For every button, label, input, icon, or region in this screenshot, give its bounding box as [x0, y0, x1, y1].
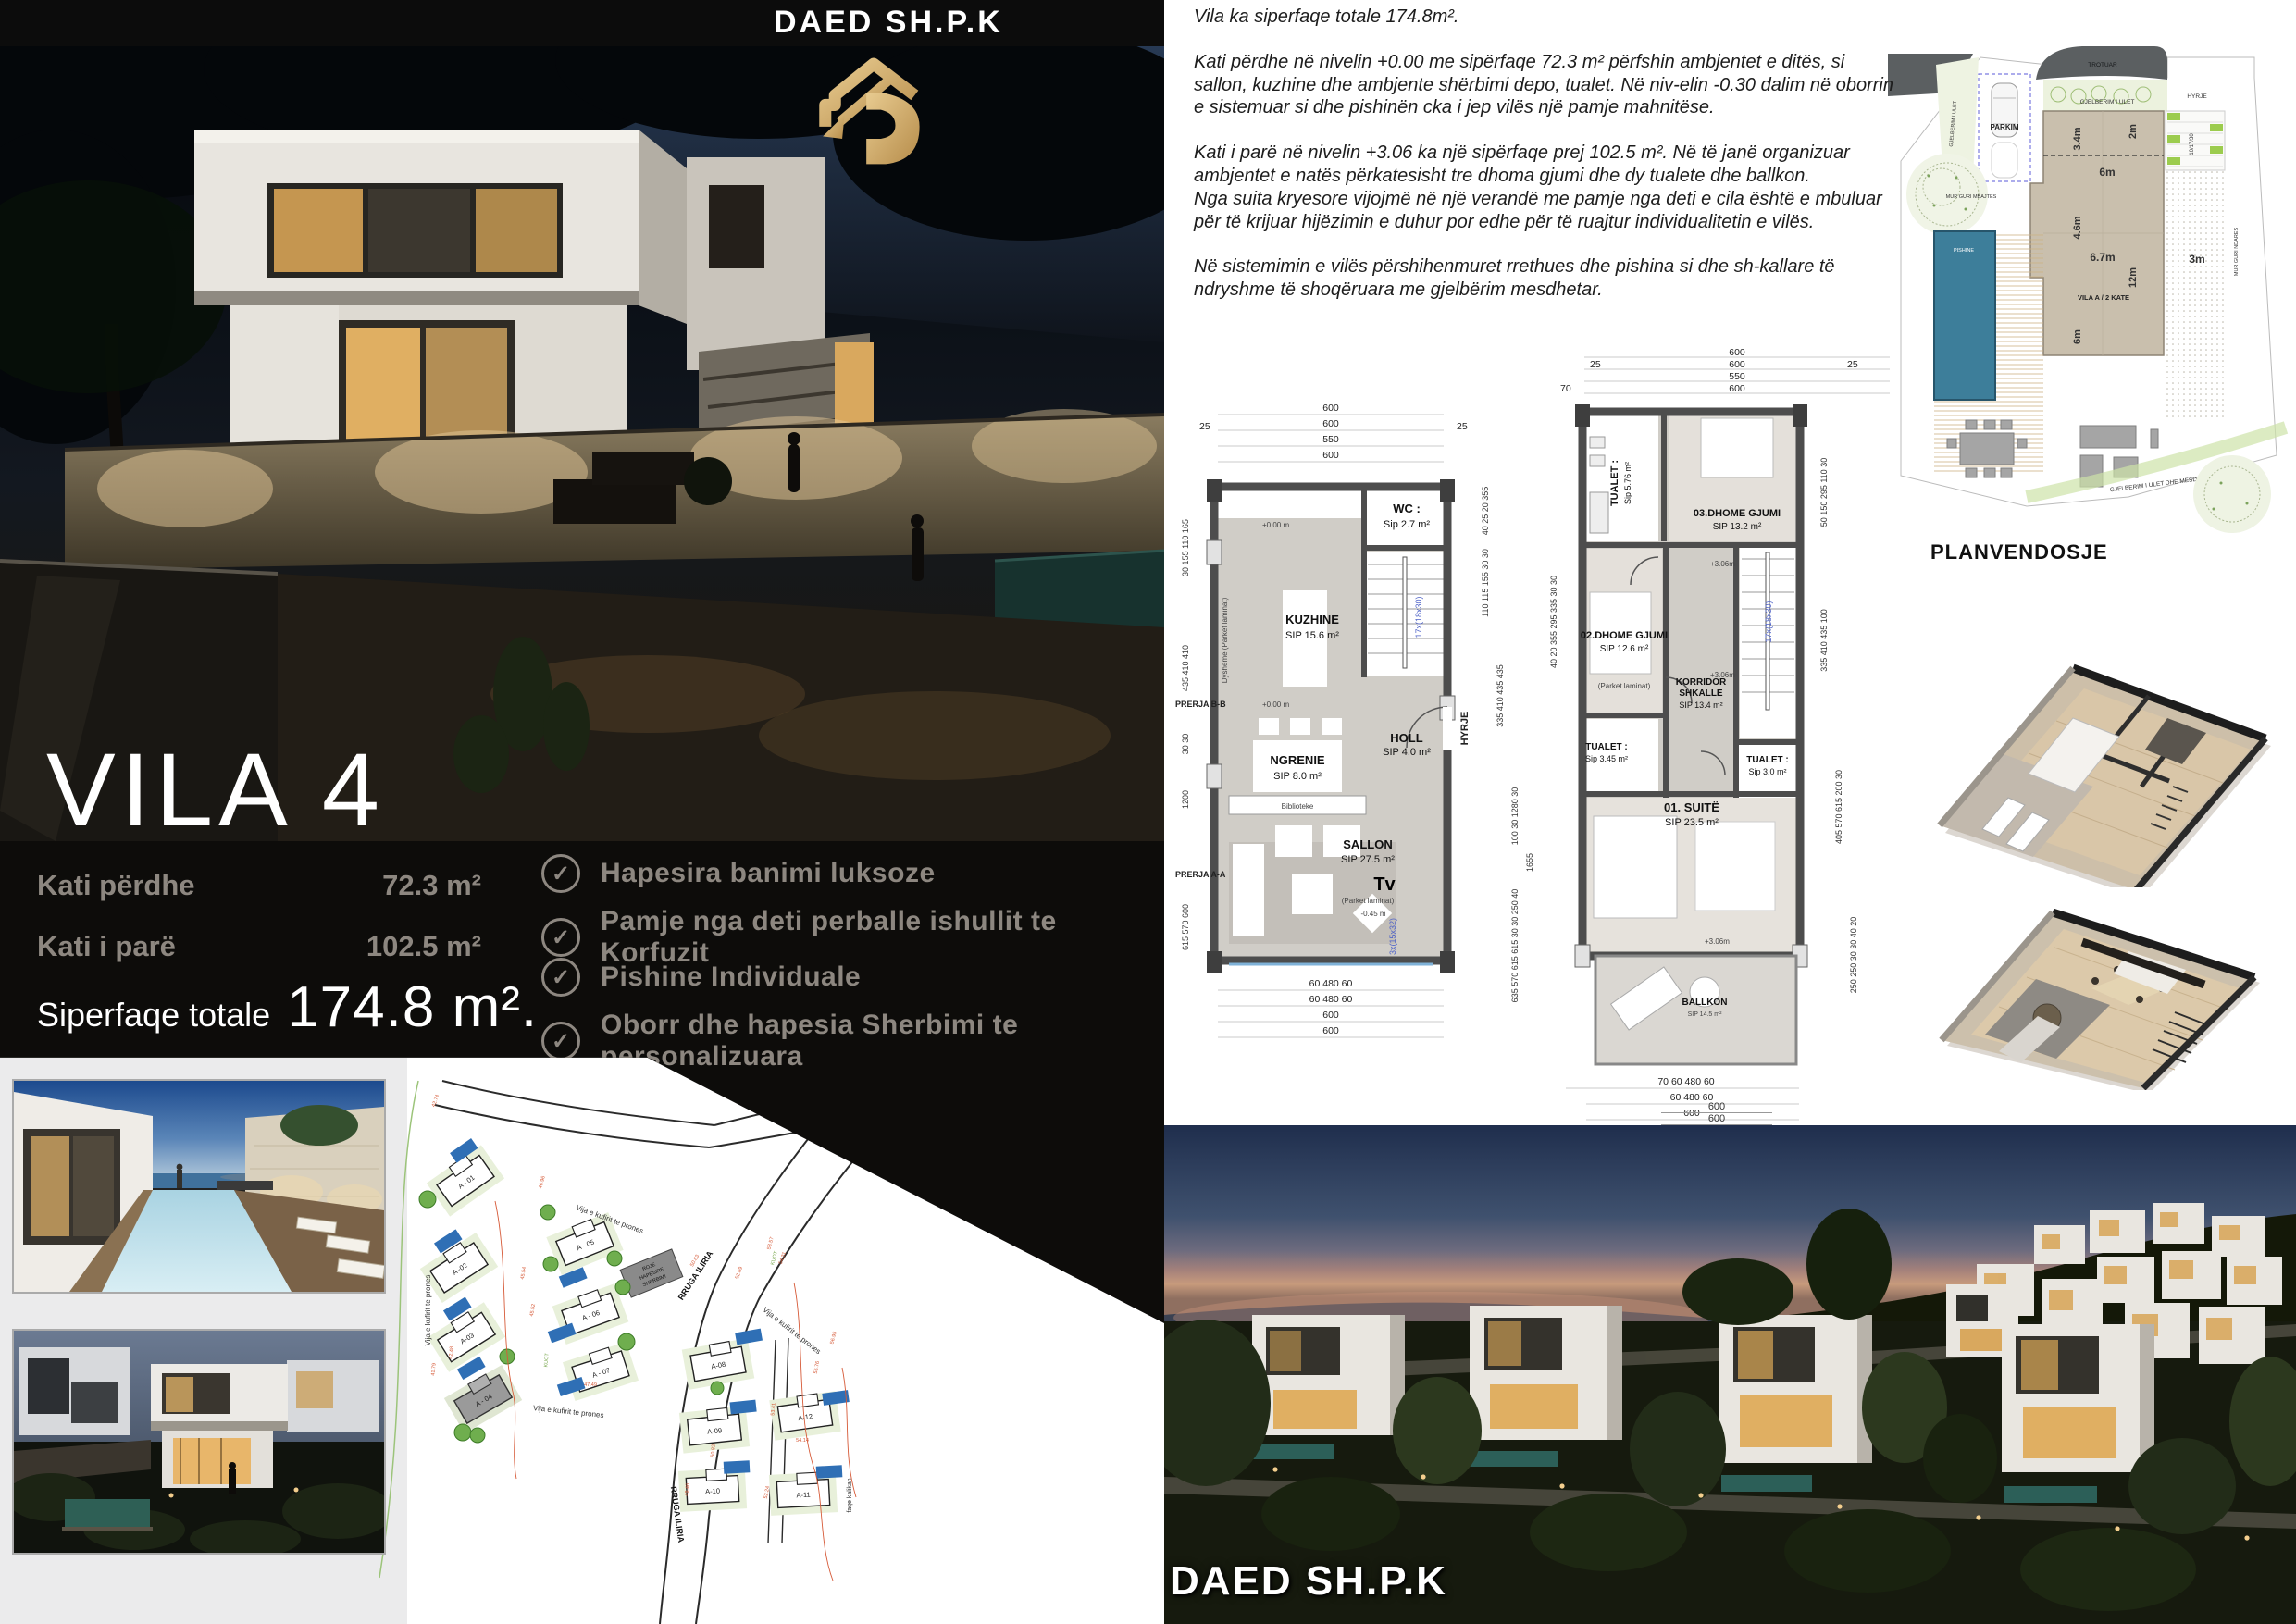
hero-villa-photo	[0, 46, 1164, 841]
siteplan-title: PLANVENDOSJE	[1930, 540, 2108, 564]
stat-value: 72.3 m²	[382, 869, 481, 902]
svg-text:60 480 60: 60 480 60	[1309, 994, 1353, 1005]
svg-text:PARKIM: PARKIM	[1991, 123, 2019, 131]
svg-text:6.7m: 6.7m	[2090, 251, 2115, 264]
villa-footprint: 3.4m 2m 6m 4.6m 6.7m 12m VILA A / 2 KATE…	[2030, 111, 2164, 355]
isometric-plan-first-floor	[1862, 614, 2296, 887]
description-block: Vila ka siperfaqe totale 174.8m². Kati p…	[1194, 6, 1897, 302]
svg-text:SIP 23.5 m²: SIP 23.5 m²	[1665, 817, 1719, 828]
svg-text:(Parket laminat): (Parket laminat)	[1342, 897, 1395, 905]
svg-text:SIP 14.5 m²: SIP 14.5 m²	[1688, 1011, 1723, 1018]
kalikan-label: faqe kalikan	[847, 1478, 853, 1512]
svg-text:+3.06m: +3.06m	[1705, 937, 1730, 946]
svg-text:A-10: A-10	[705, 1487, 720, 1496]
svg-text:Sip 3.45 m²: Sip 3.45 m²	[1585, 754, 1628, 763]
svg-text:Dysheme (Parket laminat): Dysheme (Parket laminat)	[1221, 597, 1229, 683]
svg-text:PRERJA B-B: PRERJA B-B	[1175, 700, 1226, 709]
svg-text:WC :: WC :	[1393, 502, 1421, 515]
svg-text:47.49: 47.49	[584, 1382, 597, 1388]
brand-title-bottom: DAED SH.P.K	[1170, 1558, 1447, 1605]
svg-text:50 150 295 110 30: 50 150 295 110 30	[1819, 458, 1829, 527]
plan-top-dimensions: 600 600 550 600 25 70 25	[1560, 347, 1890, 394]
svg-text:02.DHOME GJUMI: 02.DHOME GJUMI	[1581, 630, 1668, 641]
svg-text:25: 25	[1847, 359, 1858, 370]
svg-text:53.41: 53.41	[770, 1403, 776, 1416]
svg-text:HOLL: HOLL	[1390, 731, 1422, 745]
svg-text:SALLON: SALLON	[1343, 837, 1392, 851]
svg-text:Sip 3.0 m²: Sip 3.0 m²	[1748, 767, 1786, 776]
check-circle-icon: ✓	[541, 958, 580, 997]
villa-plots: A - 01 A -02 A-03 A - 04 A - 05 A - 06 A…	[420, 1145, 841, 1516]
site-plan: TROTUAR GJELBERIM I ULET GJELBERIM I ULE…	[1888, 20, 2296, 539]
total-area-line: Siperfaqe totale 174.8 m².	[37, 974, 538, 1040]
wall-label-right: MUR GURI NDARES	[2234, 228, 2240, 277]
svg-text:SHKALLE: SHKALLE	[1679, 688, 1723, 699]
svg-text:KUZHINE: KUZHINE	[1285, 613, 1339, 626]
svg-text:03.DHOME GJUMI: 03.DHOME GJUMI	[1694, 508, 1781, 519]
svg-text:Biblioteke: Biblioteke	[1282, 802, 1314, 811]
sidewalk: TROTUAR	[2036, 46, 2167, 80]
plan-left-dimensions: 40 20 355 295 335 30 30	[1549, 576, 1558, 668]
svg-text:3x(15x32): 3x(15x32)	[1388, 918, 1397, 955]
svg-text:335 410 435 100: 335 410 435 100	[1819, 609, 1829, 672]
svg-text:30 155 110 165: 30 155 110 165	[1181, 519, 1190, 576]
stat-label: Kati i parë	[37, 930, 176, 963]
svg-text:SIP 4.0 m²: SIP 4.0 m²	[1383, 747, 1431, 758]
svg-text:46.96: 46.96	[538, 1175, 546, 1189]
svg-text:335 410 435 435: 335 410 435 435	[1496, 664, 1505, 727]
svg-text:10/17/30: 10/17/30	[2190, 133, 2195, 155]
svg-text:49.46: 49.46	[684, 1483, 690, 1496]
balcony	[1595, 956, 1796, 1064]
svg-text:01. SUITË: 01. SUITË	[1664, 800, 1719, 814]
entry-steps: 10/17/30	[2166, 111, 2225, 170]
check-circle-icon: ✓	[541, 1022, 580, 1060]
description-paragraph: Në sistemimin e vilës përshihenmuret rre…	[1194, 255, 1897, 302]
brand-title: DAED SH.P.K	[774, 5, 1003, 41]
svg-text:250 250 30 30 40 20: 250 250 30 30 40 20	[1849, 917, 1858, 994]
svg-text:SIP 8.0 m²: SIP 8.0 m²	[1273, 771, 1322, 782]
description-paragraph: Kati përdhe në nivelin +0.00 me sipërfaq…	[1194, 51, 1897, 119]
entry-label: HYRJE	[2187, 93, 2207, 100]
svg-text:110 115 155 30 30: 110 115 155 30 30	[1481, 549, 1490, 617]
svg-text:1200: 1200	[1181, 790, 1190, 809]
svg-text:Tv: Tv	[1373, 874, 1396, 895]
check-circle-icon: ✓	[541, 918, 580, 957]
svg-text:Vija e kufirit te prones: Vija e kufirit te prones	[533, 1404, 604, 1419]
svg-text:+3.06m: +3.06m	[1710, 560, 1735, 568]
plan-right-dimensions: 40 25 20 355 110 115 155 30 30 335 410 4…	[1481, 487, 1534, 1003]
svg-text:PISHINE: PISHINE	[1954, 248, 1974, 254]
svg-text:600: 600	[1729, 347, 1745, 358]
brochure-page: DAED SH.P.K	[0, 0, 2296, 1624]
total-area-label: Siperfaqe totale	[37, 996, 270, 1035]
description-paragraph: për të krijuar hijëzimin e duhur por edh…	[1194, 211, 1897, 234]
svg-text:TUALET :: TUALET :	[1585, 742, 1628, 752]
svg-text:54.14: 54.14	[796, 1438, 809, 1444]
floor-plan-first: 600 600 550 600 25 70 25	[1529, 344, 1903, 1140]
villa-title: VILA 4	[46, 738, 385, 842]
stat-value: 102.5 m²	[366, 930, 481, 963]
daed-logo-icon	[813, 52, 935, 167]
svg-text:55.76: 55.76	[813, 1361, 821, 1375]
svg-text:Vija e kufirit te prones: Vija e kufirit te prones	[762, 1306, 823, 1356]
svg-text:GJELBERIM I ULET: GJELBERIM I ULET	[2080, 99, 2135, 105]
dim-3m: 3m	[2189, 253, 2204, 266]
svg-text:54.31: 54.31	[778, 1251, 788, 1265]
svg-text:+0.00 m: +0.00 m	[1262, 700, 1289, 709]
svg-text:HYRJE: HYRJE	[1459, 712, 1471, 746]
svg-text:405 570 615 200 30: 405 570 615 200 30	[1834, 770, 1843, 844]
description-paragraph: Vila ka siperfaqe totale 174.8m².	[1194, 6, 1897, 29]
villa-building	[194, 130, 687, 472]
isometric-plan-ground-floor	[1897, 877, 2296, 1090]
svg-text:53.57: 53.57	[766, 1236, 775, 1250]
svg-text:A-11: A-11	[796, 1491, 811, 1500]
svg-text:TUALET :: TUALET :	[1746, 755, 1789, 765]
svg-text:SIP 13.2 m²: SIP 13.2 m²	[1713, 522, 1762, 532]
svg-text:6m: 6m	[2072, 329, 2083, 344]
stat-label: Kati përdhe	[37, 869, 195, 902]
svg-text:550: 550	[1729, 371, 1745, 382]
svg-text:45.52: 45.52	[529, 1304, 537, 1318]
svg-text:56.95: 56.95	[829, 1331, 838, 1345]
svg-text:Vija e kufirit te prones: Vija e kufirit te prones	[424, 1275, 432, 1346]
feature-item: ✓ Pishine Individuale	[541, 958, 861, 997]
svg-text:BALLKON: BALLKON	[1682, 998, 1728, 1008]
parking: PARKIM	[1979, 74, 2030, 181]
svg-text:435 410 410: 435 410 410	[1181, 645, 1190, 691]
svg-text:70 60 480 60: 70 60 480 60	[1657, 1076, 1714, 1087]
svg-text:50.82: 50.82	[710, 1444, 716, 1457]
svg-text:600: 600	[1729, 383, 1745, 394]
svg-text:30 30: 30 30	[1181, 734, 1190, 755]
svg-text:SIP 27.5 m²: SIP 27.5 m²	[1341, 854, 1395, 865]
svg-text:615 570 600: 615 570 600	[1181, 904, 1190, 950]
description-paragraph: Nga suita kryesore vijojmë në një verand…	[1194, 188, 1897, 211]
svg-text:600: 600	[1729, 359, 1745, 370]
main-villa	[151, 1364, 288, 1488]
svg-text:600: 600	[1322, 418, 1339, 429]
svg-text:600: 600	[1322, 1010, 1339, 1021]
svg-text:60 480 60: 60 480 60	[1309, 978, 1353, 989]
svg-text:4.6m: 4.6m	[2072, 216, 2083, 239]
feature-item: ✓ Hapesira banimi luksoze	[541, 854, 936, 893]
svg-text:25: 25	[1199, 421, 1210, 432]
floor-plan-ground: 600 600 550 600 25 25	[1173, 381, 1542, 1122]
svg-text:+0.00 m: +0.00 m	[1262, 521, 1289, 529]
svg-text:(Parket laminat): (Parket laminat)	[1598, 682, 1651, 690]
svg-text:SIP 13.4 m²: SIP 13.4 m²	[1679, 700, 1722, 710]
render-top-dimensions: 600 600	[1661, 1101, 1772, 1125]
svg-text:PRERJA A-A: PRERJA A-A	[1175, 870, 1226, 879]
check-circle-icon: ✓	[541, 854, 580, 893]
svg-text:25: 25	[1590, 359, 1601, 370]
svg-text:40 25 20 355: 40 25 20 355	[1481, 487, 1490, 536]
photo-pool-terrace	[12, 1079, 386, 1294]
svg-text:550: 550	[1322, 434, 1339, 445]
svg-text:600: 600	[1322, 403, 1339, 414]
svg-text:A-09: A-09	[707, 1426, 723, 1436]
plan-right-dimensions: 50 150 295 110 30 335 410 435 100 405 57…	[1819, 458, 1858, 993]
svg-text:+3.06m: +3.06m	[1710, 671, 1735, 679]
svg-text:2m: 2m	[2128, 124, 2139, 139]
svg-text:NGRENIE: NGRENIE	[1270, 753, 1325, 767]
svg-text:600: 600	[1322, 1025, 1339, 1036]
svg-text:100 30 1280 30: 100 30 1280 30	[1510, 787, 1520, 846]
gravel-yard	[2166, 170, 2227, 418]
svg-text:TUALET :: TUALET :	[1609, 460, 1620, 506]
svg-text:Sip 2.7 m²: Sip 2.7 m²	[1384, 519, 1430, 530]
svg-text:17x(18x30): 17x(18x30)	[1414, 596, 1423, 638]
svg-text:KUOT: KUOT	[543, 1352, 550, 1367]
description-paragraph: Kati i parë në nivelin +3.06 ka një sipë…	[1194, 142, 1897, 188]
stat-row-first: Kati i parë 102.5 m²	[37, 930, 481, 963]
svg-text:SIP 15.6 m²: SIP 15.6 m²	[1285, 630, 1339, 641]
svg-text:17x(18x30): 17x(18x30)	[1764, 601, 1773, 642]
svg-text:Sip 5.76 m²: Sip 5.76 m²	[1623, 462, 1632, 504]
photo-night-villa	[12, 1329, 386, 1555]
svg-text:635 570 615 615 30 30 250 40: 635 570 615 615 30 30 250 40	[1510, 889, 1520, 1003]
svg-text:VILA A / 2 KATE: VILA A / 2 KATE	[2078, 293, 2129, 302]
svg-text:52.69: 52.69	[735, 1266, 744, 1280]
svg-text:42.48: 42.48	[448, 1346, 454, 1359]
big-tree-bottom	[2193, 455, 2271, 533]
plan-body	[1207, 479, 1455, 973]
svg-text:TROTUAR: TROTUAR	[2088, 62, 2117, 68]
svg-text:45.54: 45.54	[520, 1267, 527, 1281]
plan-bottom-dimensions: 60 480 60 60 480 60 600 600	[1218, 978, 1444, 1037]
plan-top-dimensions: 600 600 550 600 25 25	[1199, 403, 1468, 462]
svg-text:25: 25	[1457, 421, 1468, 432]
greenery-band: GJELBERIM I ULET	[2043, 80, 2167, 111]
svg-text:SIP 12.6 m²: SIP 12.6 m²	[1600, 644, 1649, 654]
stat-row-ground: Kati përdhe 72.3 m²	[37, 869, 481, 902]
svg-text:-0.45 m: -0.45 m	[1360, 910, 1385, 918]
svg-text:6m: 6m	[2099, 166, 2115, 179]
svg-text:70: 70	[1560, 383, 1571, 394]
total-area-value: 174.8 m².	[287, 974, 538, 1040]
svg-text:MUR GURI MBAJTES: MUR GURI MBAJTES	[1946, 194, 1997, 200]
svg-text:41.79: 41.79	[430, 1363, 437, 1376]
complex-render	[1164, 1125, 2296, 1624]
svg-text:600: 600	[1322, 450, 1339, 461]
svg-text:12m: 12m	[2128, 267, 2139, 288]
svg-text:3.4m: 3.4m	[2072, 127, 2083, 150]
